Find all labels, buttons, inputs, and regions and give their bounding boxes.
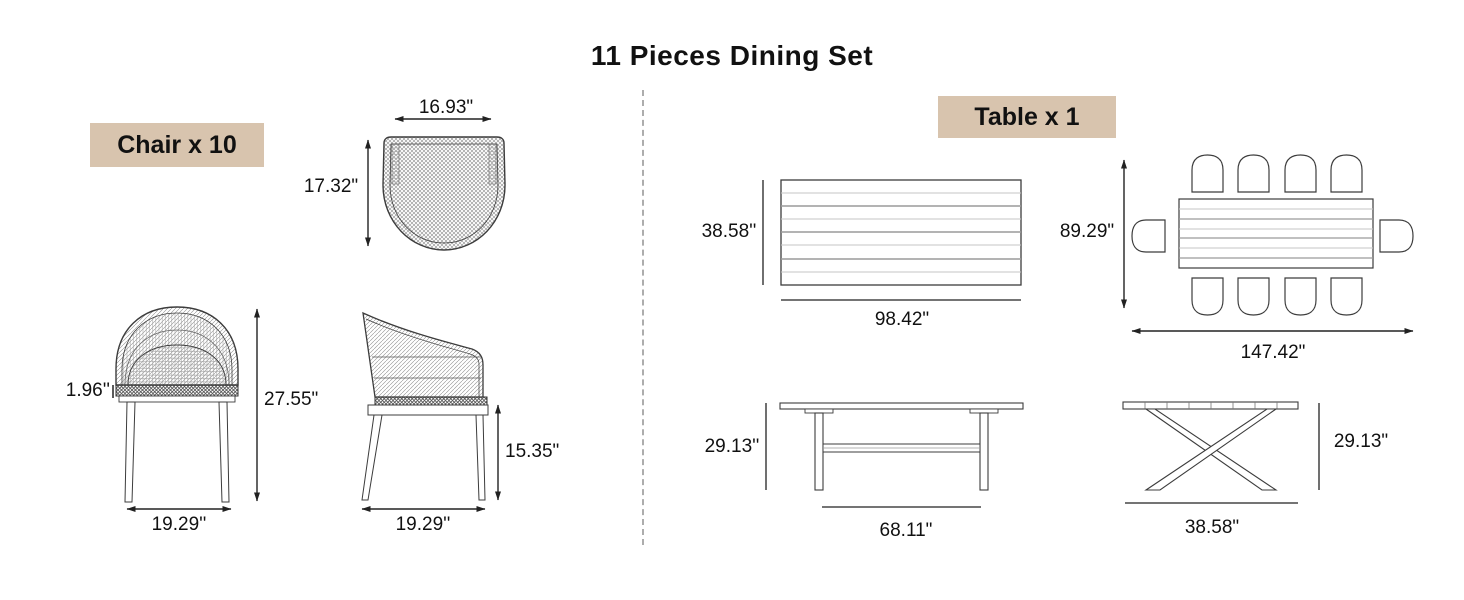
dim-chair-top-width: 16.93" xyxy=(419,97,473,118)
table-section-label-text: Table x 1 xyxy=(974,103,1079,132)
table-end-view: 29.13" 38.58" xyxy=(1090,395,1420,550)
dim-chair-top-depth: 17.32" xyxy=(304,176,358,197)
section-divider xyxy=(642,90,644,545)
chair-seat-band xyxy=(116,385,238,396)
chair-leg-left xyxy=(125,402,135,502)
table-side-view: 29.13'' 68.11" xyxy=(690,395,1030,550)
armrest-socket-left xyxy=(392,144,399,184)
dim-table-leg-span: 68.11" xyxy=(880,520,933,541)
dim-table-end-width: 38.58" xyxy=(1185,517,1239,538)
page-title: 11 Pieces Dining Set xyxy=(0,40,1464,72)
table-end-top xyxy=(1123,402,1298,409)
dim-chair-frame-thickness: 1.96'' xyxy=(66,380,110,401)
dim-layout-width: 89.29" xyxy=(1060,221,1114,242)
leg-plate-left xyxy=(805,409,833,413)
chair-side-seat-frame xyxy=(368,405,488,415)
dim-table-length: 98.42" xyxy=(875,309,929,330)
dim-layout-length: 147.42" xyxy=(1241,342,1306,363)
chair-seat-frame xyxy=(119,396,235,402)
chair-side-view: 15.35" 19.29'' xyxy=(330,285,580,540)
chair-seat-shape xyxy=(383,137,505,250)
dim-chair-height: 27.55" xyxy=(264,389,318,410)
chair-section-label-text: Chair x 10 xyxy=(117,131,237,160)
dim-table-end-height: 29.13" xyxy=(1334,431,1388,452)
leg-plate-right xyxy=(970,409,998,413)
dim-table-height: 29.13'' xyxy=(705,436,760,457)
table-top-view: 38.58'' 98.42" xyxy=(690,165,1030,340)
dim-chair-seat-height: 15.35" xyxy=(505,441,559,462)
chair-leg-right xyxy=(219,402,229,502)
table-leg-left xyxy=(815,413,823,490)
dim-table-width: 38.58'' xyxy=(702,221,757,242)
dimension-diagram: 11 Pieces Dining Set Chair x 10 Table x … xyxy=(0,0,1464,600)
chair-top-view: 16.93" 17.32" xyxy=(290,85,530,265)
armrest-socket-right xyxy=(489,144,496,184)
table-layout-view: 89.29" 147.42" xyxy=(1040,150,1440,370)
chair-section-label: Chair x 10 xyxy=(90,123,264,167)
chair-side-seat-band xyxy=(375,397,487,405)
dim-chair-depth: 19.29'' xyxy=(396,514,451,535)
table-side-top xyxy=(780,403,1023,409)
chair-side-leg-rear xyxy=(362,415,382,500)
table-leg-right xyxy=(980,413,988,490)
table-section-label: Table x 1 xyxy=(938,96,1116,138)
chair-side-leg-front xyxy=(476,415,485,500)
chair-front-view: 1.96'' 27.55" 19.29'' xyxy=(55,285,335,540)
dim-chair-width: 19.29'' xyxy=(152,514,207,535)
